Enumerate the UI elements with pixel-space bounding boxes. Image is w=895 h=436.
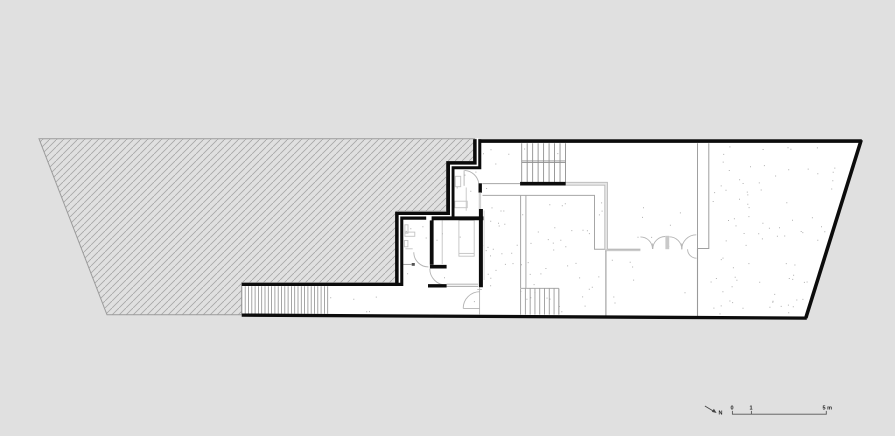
svg-text:0: 0 bbox=[731, 406, 734, 412]
svg-text:1: 1 bbox=[750, 406, 753, 412]
svg-text:N: N bbox=[719, 411, 723, 417]
svg-text:5 m: 5 m bbox=[823, 406, 833, 412]
